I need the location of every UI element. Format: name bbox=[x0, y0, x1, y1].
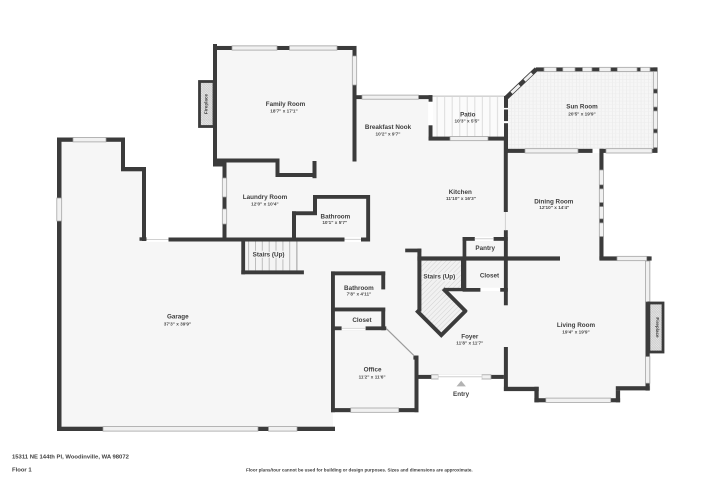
svg-text:11'2" x 11'6": 11'2" x 11'6" bbox=[359, 374, 386, 379]
svg-text:11'10" x 16'3": 11'10" x 16'3" bbox=[446, 196, 476, 201]
svg-text:Floor 1: Floor 1 bbox=[12, 467, 32, 473]
svg-text:Laundry Room: Laundry Room bbox=[243, 194, 288, 201]
svg-text:10'3" x 5'5": 10'3" x 5'5" bbox=[455, 119, 480, 124]
svg-text:Sun Room: Sun Room bbox=[566, 104, 598, 111]
svg-text:Breakfast Nook: Breakfast Nook bbox=[365, 124, 412, 131]
svg-text:7'8" x 4'11": 7'8" x 4'11" bbox=[347, 292, 372, 297]
svg-text:Patio: Patio bbox=[460, 112, 476, 119]
svg-text:18'7" x 17'1": 18'7" x 17'1" bbox=[270, 108, 298, 113]
svg-text:10'1" x 5'7": 10'1" x 5'7" bbox=[322, 220, 347, 225]
svg-text:12'10" x 14'4": 12'10" x 14'4" bbox=[539, 205, 569, 210]
svg-text:Entry: Entry bbox=[453, 391, 470, 398]
svg-text:Garage: Garage bbox=[167, 314, 189, 321]
svg-text:20'5" x 19'9": 20'5" x 19'9" bbox=[568, 111, 596, 116]
svg-text:Pantry: Pantry bbox=[475, 245, 495, 252]
svg-text:Fireplace: Fireplace bbox=[203, 93, 208, 114]
svg-text:37'3" x 39'9": 37'3" x 39'9" bbox=[164, 321, 192, 326]
svg-text:19'4" x 19'9": 19'4" x 19'9" bbox=[562, 329, 590, 334]
svg-text:15311 NE 144th Pl, Woodinville: 15311 NE 144th Pl, Woodinville, WA 98072 bbox=[12, 455, 130, 461]
svg-text:Closet: Closet bbox=[480, 273, 500, 280]
svg-text:Closet: Closet bbox=[352, 317, 372, 324]
svg-text:Office: Office bbox=[364, 366, 382, 373]
svg-text:Fireplace: Fireplace bbox=[655, 317, 660, 338]
svg-text:12'0" x 10'4": 12'0" x 10'4" bbox=[251, 201, 279, 206]
svg-text:11'8" x 11'7": 11'8" x 11'7" bbox=[456, 340, 483, 345]
svg-text:Stairs (Up): Stairs (Up) bbox=[253, 251, 285, 258]
svg-text:Living Room: Living Room bbox=[557, 322, 596, 329]
svg-text:Stairs (Up): Stairs (Up) bbox=[423, 274, 455, 281]
svg-text:Floor plans/tour cannot be use: Floor plans/tour cannot be used for buil… bbox=[246, 467, 473, 472]
svg-text:10'2" x 9'7": 10'2" x 9'7" bbox=[376, 132, 401, 137]
svg-text:Family Room: Family Room bbox=[266, 101, 306, 108]
